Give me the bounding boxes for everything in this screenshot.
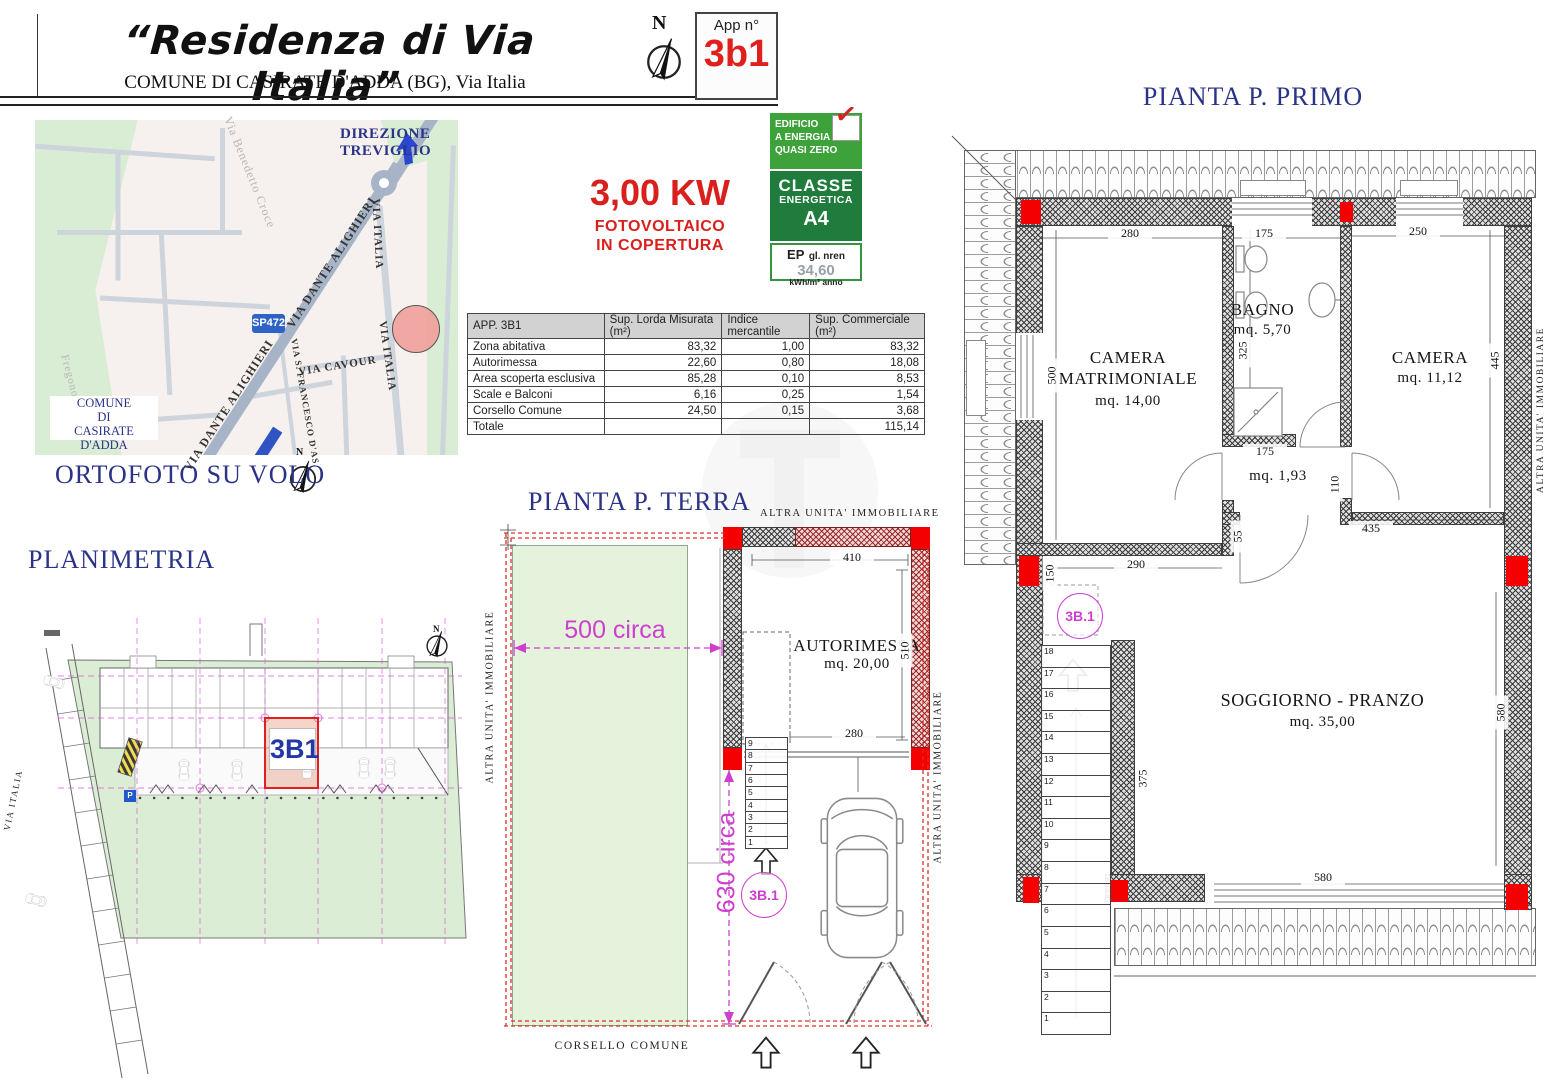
terra-garden-height-dim: 630 circa: [713, 788, 742, 938]
page-subtitle: COMUNE DI CASIRATE D'ADDA (BG), Via Ital…: [110, 72, 540, 94]
stair-step: 17: [1042, 668, 1110, 690]
col-header-indice: Indice mercantile: [722, 314, 810, 339]
terra-pillar: [911, 748, 930, 770]
table-cell: 115,14: [810, 419, 925, 435]
terra-altra-left-label: ALTRA UNITA' IMMOBILIARE: [485, 654, 496, 784]
stair-step: 5: [1042, 927, 1110, 949]
ortofoto-caption: ORTOFOTO SU VOLO: [55, 460, 325, 490]
primo-pillar: [1021, 200, 1041, 224]
planimetria-street-label: VIA ITALIA: [1, 765, 25, 836]
primo-bagno-mq: mq. 5,70: [1200, 322, 1325, 339]
primo-dim: 580: [1301, 870, 1345, 885]
map-road: [100, 296, 270, 310]
ep-unit: kWh/m² anno: [772, 278, 860, 287]
primo-window-gap: [1232, 198, 1312, 226]
pv-line1: FOTOVOLTAICO: [585, 218, 735, 236]
table-row: Totale115,14: [468, 419, 925, 435]
stair-step: 14: [1042, 732, 1110, 754]
primo-unit-badge: 3B.1: [1057, 593, 1103, 639]
terra-unit-badge: 3B.1: [741, 872, 787, 918]
map-road: [57, 230, 242, 235]
primo-dim: 110: [1328, 468, 1343, 502]
room-mq: mq. 14,00: [1095, 393, 1161, 409]
col-header-lorda: Sup. Lorda Misurata (m²): [604, 314, 722, 339]
table-row: Corsello Comune24,500,153,68: [468, 403, 925, 419]
primo-bagno-label: BAGNO: [1200, 300, 1325, 320]
map-direction-label: DIREZIONE TREVIGLIO: [340, 126, 450, 160]
terra-altra-top-label: ALTRA UNITA' IMMOBILIARE: [760, 508, 910, 519]
terra-dim-410: 410: [830, 550, 874, 565]
primo-title: PIANTA P. PRIMO: [1133, 82, 1373, 112]
table-cell: [604, 419, 722, 435]
stair-step: 13: [1042, 754, 1110, 776]
table-cell: 24,50: [604, 403, 722, 419]
primo-pillar: [1023, 877, 1039, 903]
stair-step: 12: [1042, 776, 1110, 798]
primo-dim: 500: [1045, 359, 1060, 393]
table-cell: 22,60: [604, 355, 722, 371]
energy-class-box: CLASSE ENERGETICA A4: [770, 171, 862, 241]
pv-power: 3,00 KW: [585, 172, 735, 214]
terra-pillar: [723, 527, 742, 549]
room-name: CAMERA: [1090, 348, 1166, 367]
area-table-body: Zona abitativa83,321,0083,32Autorimessa2…: [468, 339, 925, 435]
stair-step: 15: [1042, 711, 1110, 733]
table-cell: Area scoperta esclusiva: [468, 371, 605, 387]
ep-sublabel: gl. nren: [809, 251, 845, 262]
stair-step: 6: [746, 775, 787, 787]
primo-window-sill: [966, 340, 986, 416]
terra-garage-left-wall: [723, 549, 742, 748]
site-plan: [25, 618, 466, 1078]
nzeb-line: EDIFICIO: [775, 119, 818, 130]
map-location-marker: [392, 305, 440, 353]
stairs-terra: 987654321: [745, 737, 788, 849]
energy-ep-box: EP gl. nren 34,60 kWh/m² anno: [770, 243, 862, 281]
primo-camera-mq: mq. 11,12: [1360, 370, 1500, 387]
table-cell: 0,80: [722, 355, 810, 371]
entrance-arrow-icon: [853, 1038, 878, 1068]
stair-step: 4: [1042, 949, 1110, 971]
primo-pillar: [1340, 202, 1353, 222]
nzeb-line: A ENERGIA: [775, 132, 830, 143]
stair-step: 18: [1042, 646, 1110, 668]
header-rule-2: [0, 104, 778, 106]
terra-garden-width-dim: 500 circa: [540, 616, 690, 645]
stair-step: 8: [1042, 862, 1110, 884]
energy-class-badge: EDIFICIO A ENERGIA QUASI ZERO ✓ CLASSE E…: [770, 113, 862, 281]
col-header-app: APP. 3B1: [468, 314, 605, 339]
table-row: Autorimessa22,600,8018,08: [468, 355, 925, 371]
map-sp472-badge: SP472: [252, 314, 285, 333]
table-cell: 18,08: [810, 355, 925, 371]
ep-label: EP: [787, 247, 804, 262]
table-row: Zona abitativa83,321,0083,32: [468, 339, 925, 355]
entrance-arrow-icon: [755, 848, 777, 874]
car-icon: [821, 798, 903, 957]
table-cell: 1,54: [810, 387, 925, 403]
grid-lines: [58, 618, 462, 945]
stair-step: 16: [1042, 689, 1110, 711]
app-number: 3b1: [697, 34, 776, 74]
table-cell: 6,16: [604, 387, 722, 403]
north-letter-ortofoto: N: [296, 447, 303, 458]
stair-step: 9: [746, 738, 787, 750]
primo-dim: 375: [1136, 762, 1151, 796]
stair-step: 1: [1042, 1013, 1110, 1034]
table-cell: 1,00: [722, 339, 810, 355]
table-cell: 85,28: [604, 371, 722, 387]
stair-step: 3: [1042, 970, 1110, 992]
primo-disimpegno-mq: mq. 1,93: [1210, 468, 1346, 485]
col-header-commerciale: Sup. Commerciale (m²): [810, 314, 925, 339]
comune-line: COMUNE: [77, 396, 131, 410]
ep-value: 34,60: [772, 264, 860, 278]
terra-pillar: [723, 748, 742, 770]
planimetria-title: PLANIMETRIA: [28, 545, 215, 575]
terra-dim-510: 510: [898, 634, 913, 668]
primo-bagno-right-wall: [1340, 226, 1352, 447]
north-letter-header: N: [652, 12, 666, 35]
stair-step: 11: [1042, 797, 1110, 819]
table-cell: Autorimessa: [468, 355, 605, 371]
map-comune-box: COMUNE DI CASIRATE D'ADDA: [50, 396, 158, 440]
terra-title: PIANTA P. TERRA: [528, 487, 751, 517]
map-road: [116, 151, 121, 281]
class-label: CLASSE: [770, 177, 862, 194]
table-header-row: APP. 3B1 Sup. Lorda Misurata (m²) Indice…: [468, 314, 925, 339]
table-cell: Totale: [468, 419, 605, 435]
primo-dim: 55: [1231, 521, 1246, 553]
north-letter-planimetria: N: [433, 624, 440, 634]
primo-stair-wall: [1111, 640, 1135, 880]
table-cell: 83,32: [810, 339, 925, 355]
table-cell: [722, 419, 810, 435]
parking-icon: P: [124, 790, 136, 802]
header-rule-1: [0, 96, 778, 98]
table-cell: 0,10: [722, 371, 810, 387]
stair-step: 10: [1042, 819, 1110, 841]
primo-window-gap: [1396, 198, 1463, 226]
stair-step: 9: [1042, 840, 1110, 862]
entrance-arrow-icon: [753, 1038, 778, 1068]
stair-step: 8: [746, 750, 787, 762]
primo-pillar: [1110, 880, 1128, 902]
area-table: APP. 3B1 Sup. Lorda Misurata (m²) Indice…: [467, 313, 925, 435]
compass-icon: [648, 37, 680, 81]
class-value: A4: [770, 206, 862, 232]
primo-pillar: [1506, 884, 1528, 910]
primo-camera-label: CAMERA: [1360, 348, 1500, 368]
table-cell: 0,25: [722, 387, 810, 403]
primo-matr-bottom-wall: [1016, 543, 1222, 556]
check-icon: ✓: [832, 115, 860, 141]
primo-window-sill: [1240, 180, 1306, 196]
table-cell: 0,15: [722, 403, 810, 419]
room-name: MATRIMONIALE: [1059, 369, 1197, 388]
stair-step: 3: [746, 812, 787, 824]
header-left-rule: [37, 14, 38, 96]
primo-dim: 175: [1242, 226, 1286, 241]
table-row: Area scoperta esclusiva85,280,108,53: [468, 371, 925, 387]
primo-roof-bottom: [1114, 908, 1536, 966]
table-cell: 83,32: [604, 339, 722, 355]
map-road: [159, 230, 173, 395]
primo-dim: 580: [1494, 696, 1509, 730]
map-roundabout-center: [379, 178, 389, 188]
stairs-primo: 181716151413121110987654321: [1041, 645, 1111, 1035]
stair-step: 1: [746, 837, 787, 848]
primo-dim: 445: [1488, 344, 1503, 378]
stair-step: 2: [746, 824, 787, 836]
table-cell: Zona abitativa: [468, 339, 605, 355]
primo-dim: 150: [1043, 557, 1058, 591]
planimetria-unit-label: 3B1: [269, 728, 316, 770]
table-cell: Scale e Balconi: [468, 387, 605, 403]
stair-step: 5: [746, 787, 787, 799]
primo-altra-right-label: ALTRA UNITA' IMMOBILIARE: [1536, 363, 1546, 493]
primo-dim: 325: [1236, 334, 1251, 368]
terra-altra-right-label: ALTRA UNITA' IMMOBILIARE: [933, 734, 944, 864]
compass-icon: [427, 630, 447, 657]
nzeb-line: QUASI ZERO: [775, 145, 837, 156]
app-label: App n°: [697, 17, 776, 34]
stair-step: 7: [746, 763, 787, 775]
map-road: [220, 128, 225, 233]
terra-corsello-label: CORSELLO COMUNE: [552, 1040, 692, 1052]
stair-step: 2: [1042, 992, 1110, 1014]
primo-pillar: [1019, 556, 1039, 586]
table-row: Scale e Balconi6,160,251,54: [468, 387, 925, 403]
primo-dim: 435: [1349, 521, 1393, 536]
energy-nzeb-box: EDIFICIO A ENERGIA QUASI ZERO ✓: [770, 113, 862, 169]
map-road-blue-segment: [249, 427, 283, 455]
primo-dim: 250: [1396, 224, 1440, 239]
stair-step: 7: [1042, 884, 1110, 906]
table-cell: 3,68: [810, 403, 925, 419]
primo-dim: 290: [1114, 557, 1158, 572]
primo-window-sill: [1400, 180, 1458, 196]
pv-line2: IN COPERTURA: [585, 237, 735, 255]
primo-dim: 175: [1243, 444, 1287, 459]
stair-step: 6: [1042, 905, 1110, 927]
primo-pillar: [1506, 556, 1528, 586]
stair-step: 4: [746, 800, 787, 812]
primo-soggiorno-label: SOGGIORNO - PRANZO: [1200, 690, 1445, 711]
terra-dim-280: 280: [832, 726, 876, 741]
class-label: ENERGETICA: [770, 194, 862, 206]
primo-dim: 280: [1108, 226, 1152, 241]
table-cell: 8,53: [810, 371, 925, 387]
apartment-number-box: App n° 3b1: [695, 12, 778, 100]
primo-soggiorno-mq: mq. 35,00: [1200, 714, 1445, 731]
terra-pillar: [911, 527, 930, 549]
table-cell: Corsello Comune: [468, 403, 605, 419]
comune-line: CASIRATE D'ADDA: [74, 424, 134, 452]
comune-line: DI: [97, 410, 110, 424]
terra-garage-top-wall-red: [795, 527, 911, 547]
